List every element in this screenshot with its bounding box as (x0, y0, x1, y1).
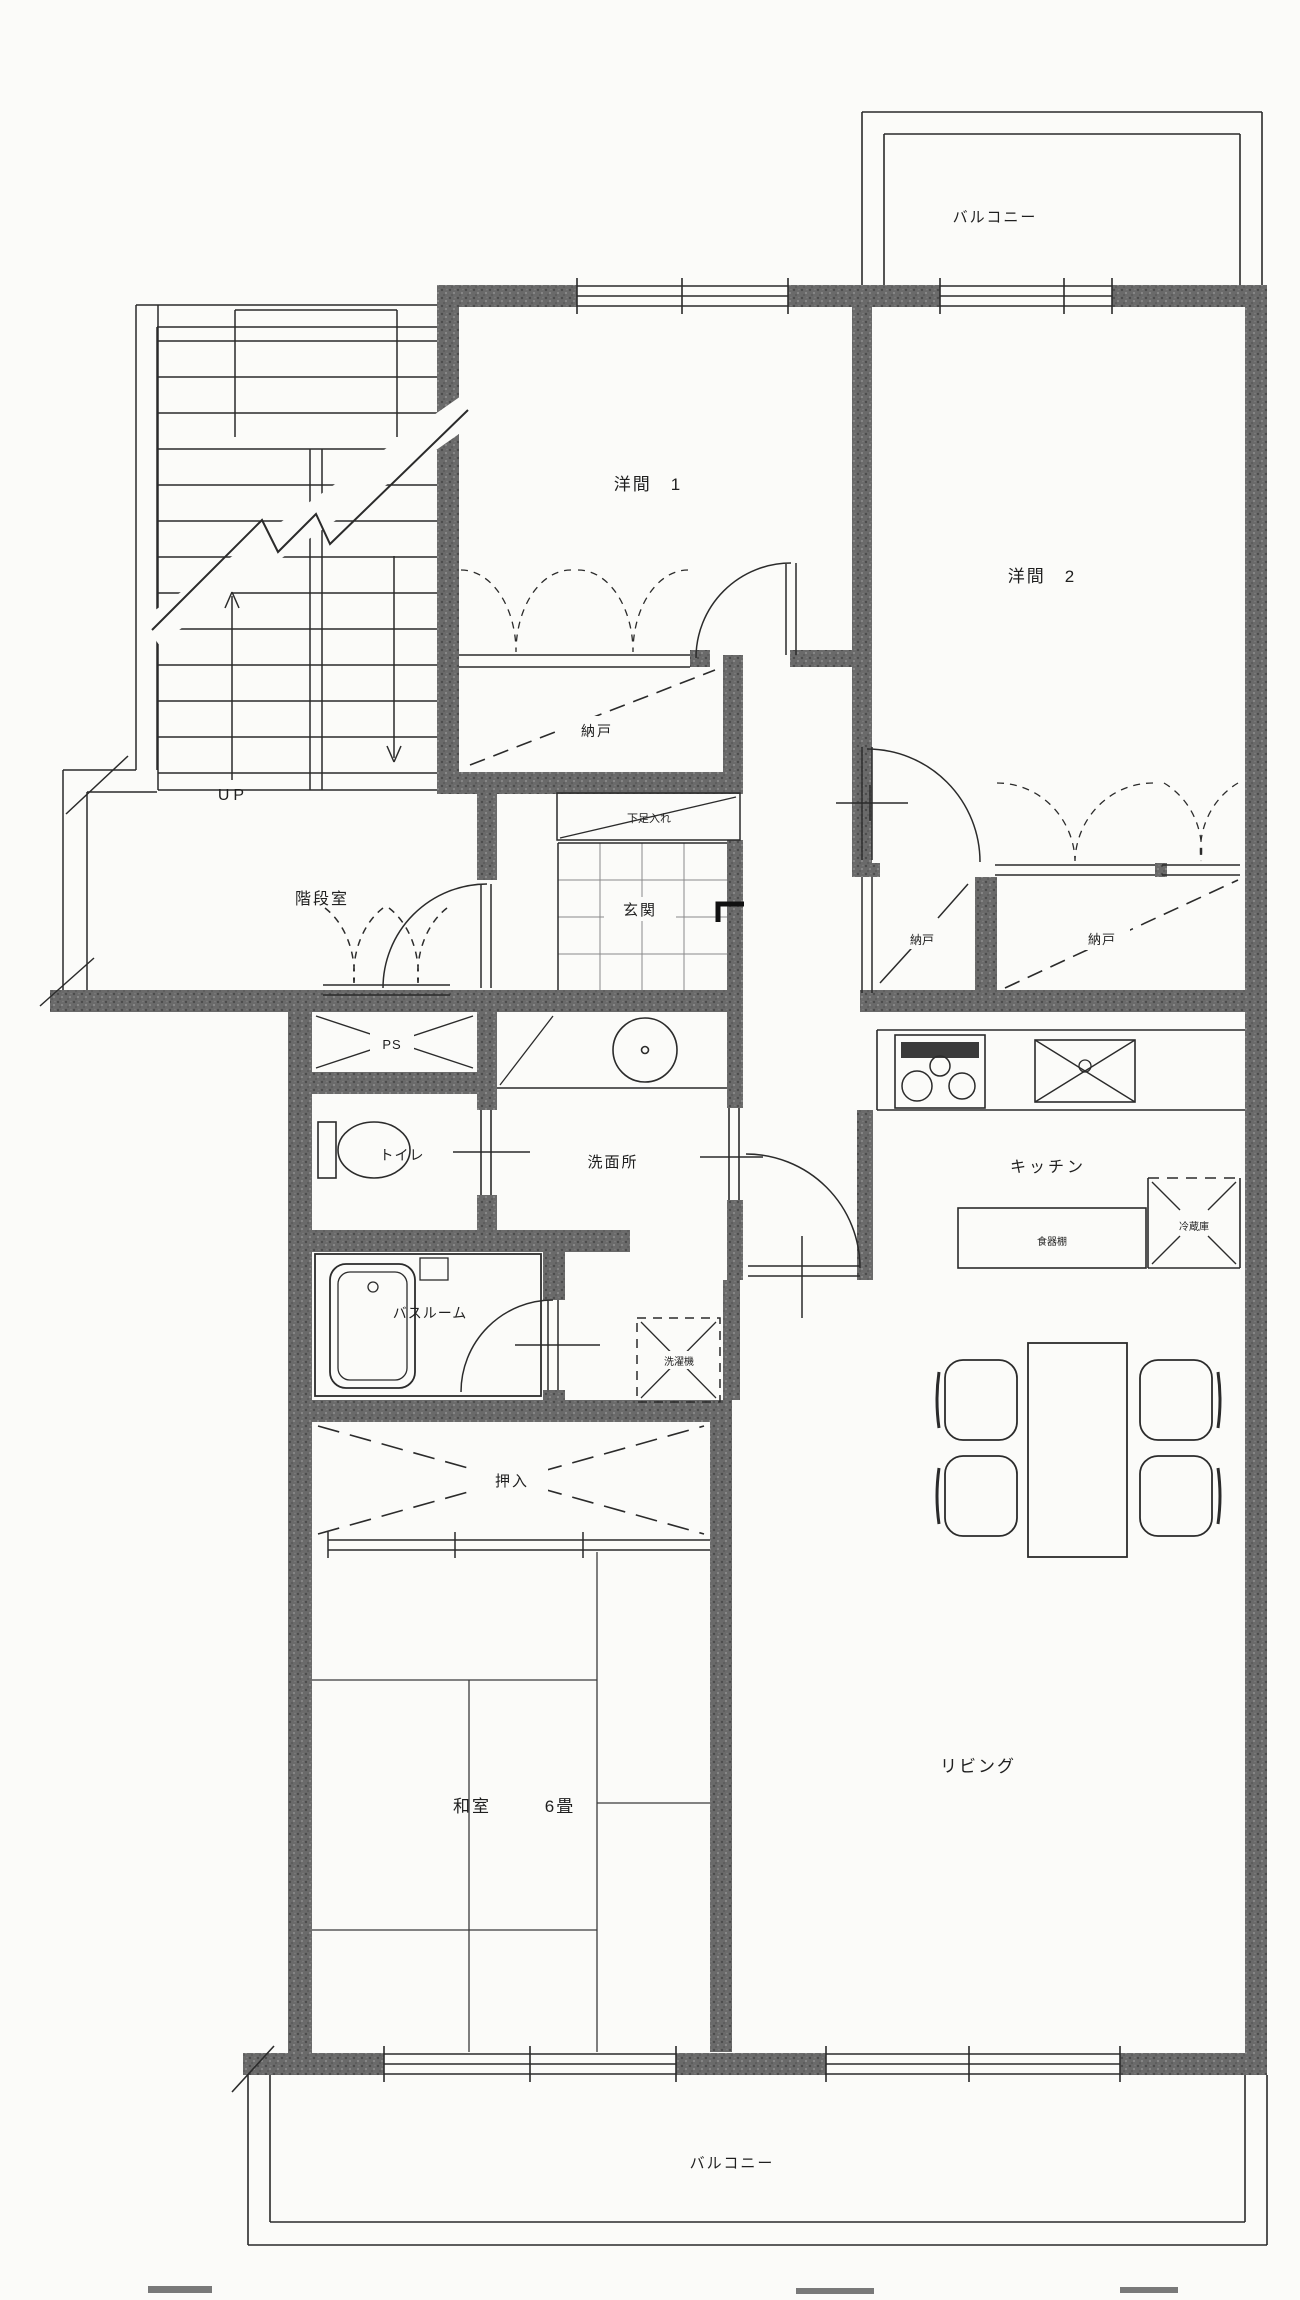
dining-set (937, 1343, 1220, 1557)
toilet-tank (318, 1122, 336, 1178)
balcony-top (862, 112, 1262, 285)
chair (945, 1456, 1017, 1536)
label-entrance: 玄関 (623, 902, 657, 919)
wall-washroom-south (312, 1230, 630, 1252)
stove-burner-right (949, 1073, 975, 1099)
label-backgrounds (370, 716, 1222, 1492)
wall-western1-south-stub (690, 650, 710, 667)
label-kitchen: キッチン (1010, 1159, 1086, 1176)
label-cupboard: 食器棚 (1037, 1235, 1067, 1248)
storage-b-west-line (862, 877, 872, 993)
stove-burner-small (930, 1056, 950, 1076)
sink-cross (1035, 1040, 1135, 1102)
label-up: UP (218, 787, 248, 804)
wall-kitchen-north (860, 990, 1267, 1012)
label-storage-a: 納戸 (581, 723, 613, 739)
bathtub-drain (368, 1282, 378, 1292)
storage-a-track (459, 655, 690, 667)
bathtub-in (338, 1272, 407, 1380)
dining-chairs (937, 1360, 1220, 1536)
washroom (497, 1016, 763, 1200)
wall-oshiire-north (288, 1400, 732, 1422)
wall-corridor-east-lower (857, 1110, 873, 1262)
label-pipe-space: PS (382, 1037, 401, 1052)
storage-bc-tracks (995, 865, 1240, 875)
wall-stub-closetB (852, 863, 880, 877)
bath-corner-step (420, 1258, 448, 1280)
western1-door (696, 563, 796, 658)
bath-door (461, 1300, 558, 1392)
window-bottom-west (384, 2046, 676, 2082)
wall-ps-south (312, 1072, 477, 1094)
label-washroom: 洗面所 (587, 1154, 638, 1171)
label-balcony-top: バルコニー (953, 209, 1038, 226)
label-toilet: トイレ (380, 1147, 425, 1163)
label-bathroom: バスルーム (393, 1305, 468, 1321)
label-japanese-room: 和室 (453, 1797, 491, 1816)
stair-treads (158, 341, 437, 773)
living-door (746, 1154, 860, 1318)
wall-right (1245, 285, 1267, 2075)
meterbox-folding-doors (325, 908, 447, 983)
tatami-lines (312, 1552, 710, 2052)
washroom-corner-line (500, 1016, 553, 1085)
wall-storageBC-divider (975, 877, 997, 993)
break-marks (40, 756, 128, 1006)
wall-bath-east-upper (543, 1252, 565, 1300)
wall-bath-east-lower (543, 1390, 565, 1400)
label-balcony-bottom: バルコニー (690, 2155, 775, 2172)
toilet-door (453, 1110, 530, 1195)
wall-entry-east (727, 840, 743, 990)
fusuma-track (328, 1532, 710, 1558)
storage-a-folding-doors (461, 570, 688, 652)
label-storage-c: 納戸 (1088, 932, 1116, 947)
wall-top-c (1112, 285, 1267, 307)
chair (945, 1360, 1017, 1440)
label-storage-b: 納戸 (910, 933, 934, 947)
entrance-door (383, 884, 491, 988)
label-futon-closet: 押入 (495, 1473, 529, 1490)
stove-burner-left (902, 1071, 932, 1101)
label-shoe-cabinet: 下足入れ (627, 812, 671, 825)
wall-corridor-west-upper (727, 1012, 743, 1108)
chair (1140, 1456, 1212, 1536)
storage-c-folding-doors (997, 783, 1238, 861)
wall-corridor-west-lower (727, 1200, 743, 1280)
wall-storageA-south (437, 772, 723, 794)
wall-left-lower (288, 990, 312, 2075)
chair (1140, 1360, 1212, 1440)
wash-basin (613, 1018, 677, 1082)
window-bottom-east (826, 2046, 1120, 2082)
floor-plan-sheet: バルコニー 洋間 1 洋間 2 UP 階段室 納戸 下足入れ 玄関 納戸 納戸 … (0, 0, 1300, 2300)
label-stair-room: 階段室 (295, 890, 349, 908)
stair-landing (235, 310, 397, 437)
label-washing-machine: 洗濯機 (664, 1355, 694, 1368)
stairwell (40, 305, 491, 1006)
scan-artifacts (148, 2286, 1178, 2294)
label-refrigerator: 冷蔵庫 (1179, 1220, 1209, 1233)
wall-stairhall-south (50, 990, 743, 1012)
label-living: リビング (940, 1757, 1016, 1776)
stair-arrow-down (387, 556, 401, 762)
wall-bottom-c (1120, 2053, 1267, 2075)
dining-table (1028, 1343, 1127, 1557)
stair-arrow-up (225, 592, 239, 780)
window-top-east (940, 278, 1112, 314)
windows (384, 278, 1120, 2082)
wall-entry-west (477, 794, 497, 880)
wall-storageA-east (723, 655, 743, 794)
wall-bottom-b (676, 2053, 826, 2075)
wall-toilet-east-lower (477, 1195, 497, 1230)
window-top-west (577, 278, 788, 314)
label-japanese-room-size: 6畳 (545, 1797, 575, 1816)
bath-unit-outline (315, 1254, 541, 1396)
wall-washer-east (723, 1280, 740, 1400)
wall-western1-south-seg (790, 650, 852, 667)
floor-plan-drawing: バルコニー 洋間 1 洋間 2 UP 階段室 納戸 下足入れ 玄関 納戸 納戸 … (0, 0, 1300, 2300)
label-western-room-2: 洋間 2 (1008, 567, 1076, 586)
balcony-bottom (232, 2046, 1267, 2245)
wall-washitsu-east (710, 1400, 732, 2052)
basin-drain (642, 1047, 649, 1054)
storage-c (995, 783, 1240, 988)
label-western-room-1: 洋間 1 (614, 475, 682, 494)
wall-western1-west (437, 285, 459, 794)
wall-toilet-east-upper (477, 1012, 497, 1110)
walls (50, 285, 1267, 2075)
